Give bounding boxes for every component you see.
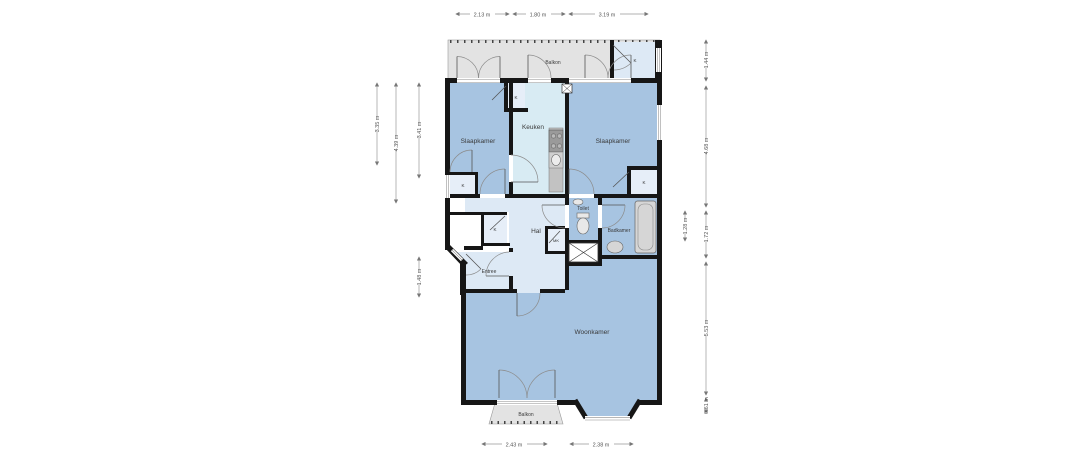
- room-fills: [448, 40, 660, 424]
- floorplan-page: Balkon K Slaapkamer Keuken K Slaapkamer …: [0, 0, 1091, 450]
- stove-burner: [557, 144, 561, 148]
- dimension-label: 5.53 m: [704, 319, 710, 336]
- dimension-label: 0.61 m: [704, 397, 710, 414]
- dimension-label: 3.41 m: [417, 121, 423, 138]
- closet-bedroom-left-floor: [450, 175, 475, 194]
- meter-closet-floor: [548, 229, 565, 251]
- balcony-bottom-floor: [489, 403, 563, 424]
- toilet-tank: [577, 213, 589, 218]
- floor-plan-canvas: Balkon K Slaapkamer Keuken K Slaapkamer …: [0, 0, 1091, 450]
- closet-hall-floor: [484, 215, 507, 243]
- toilet-sink: [573, 199, 583, 205]
- dimension-label: 1.44 m: [704, 51, 710, 68]
- kitchen-sink: [552, 155, 561, 166]
- kitchen-fixtures: [549, 128, 563, 192]
- dimension-label: 4.68 m: [704, 137, 710, 154]
- stove-burner: [551, 144, 555, 148]
- balcony-closet-floor: [614, 42, 655, 78]
- dimension-label: 1.28 m: [683, 217, 689, 234]
- dimension-label: 1.48 m: [417, 268, 423, 285]
- stove: [549, 130, 563, 152]
- dimension-label: 1.72 m: [704, 225, 710, 242]
- closet-bedroom-right-floor: [631, 170, 657, 194]
- toilet-bowl: [577, 218, 589, 234]
- dimension-label: 3.35 m: [375, 115, 381, 132]
- dimension-label: 4.39 m: [394, 134, 400, 151]
- stove-burner: [551, 134, 555, 138]
- bathroom-sink: [607, 241, 623, 253]
- hall-corridor-floor: [465, 198, 509, 212]
- stove-burner: [557, 134, 561, 138]
